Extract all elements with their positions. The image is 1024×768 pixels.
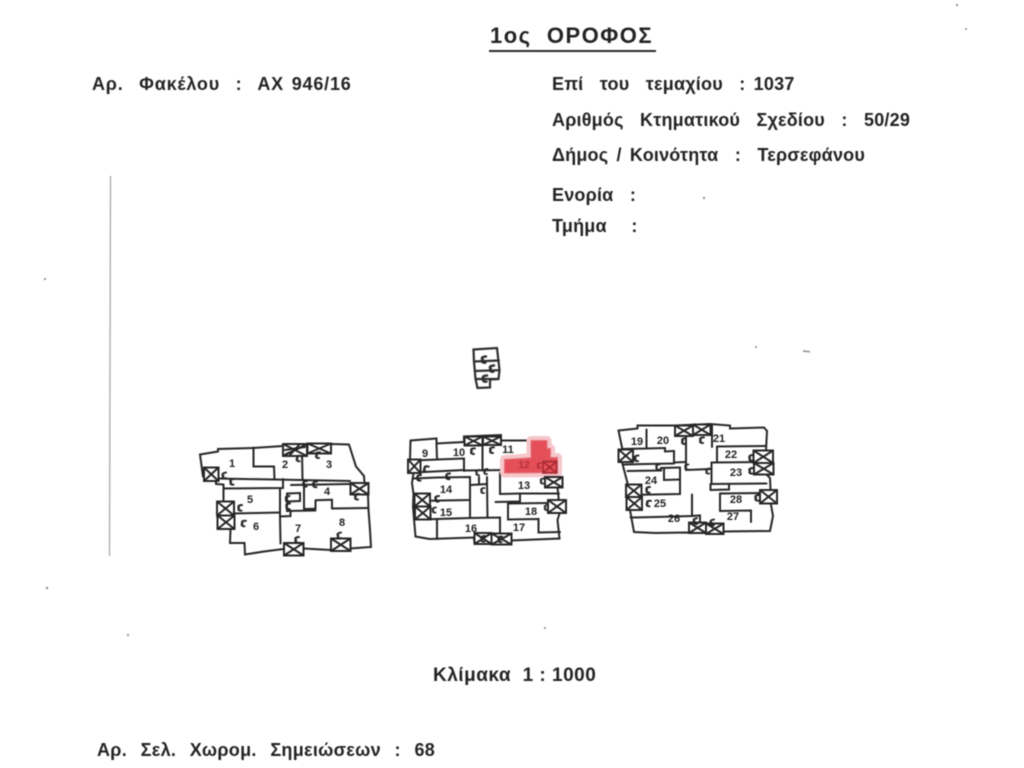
svg-text:26: 26: [668, 513, 680, 525]
svg-text:13: 13: [518, 480, 530, 492]
svg-text:28: 28: [730, 494, 742, 506]
svg-text:2: 2: [282, 459, 288, 471]
svg-text:15: 15: [440, 507, 452, 519]
svg-text:25: 25: [654, 498, 666, 510]
svg-text:9: 9: [422, 448, 428, 460]
svg-text:14: 14: [440, 484, 453, 496]
svg-text:3: 3: [326, 459, 332, 471]
svg-text:19: 19: [631, 436, 643, 448]
svg-text:1: 1: [229, 458, 235, 470]
svg-text:22: 22: [725, 449, 737, 461]
svg-text:6: 6: [253, 521, 259, 533]
svg-text:4: 4: [324, 486, 331, 498]
svg-text:11: 11: [502, 444, 514, 456]
svg-text:20: 20: [657, 435, 669, 447]
svg-text:23: 23: [730, 467, 742, 479]
svg-text:12: 12: [518, 460, 530, 471]
svg-text:5: 5: [247, 494, 253, 506]
svg-text:10: 10: [453, 447, 465, 459]
svg-text:18: 18: [525, 506, 537, 518]
svg-text:21: 21: [713, 433, 725, 445]
svg-text:7: 7: [295, 523, 301, 535]
svg-text:8: 8: [339, 517, 345, 529]
svg-text:24: 24: [645, 475, 658, 487]
svg-text:17: 17: [513, 522, 525, 534]
svg-text:27: 27: [727, 511, 739, 523]
